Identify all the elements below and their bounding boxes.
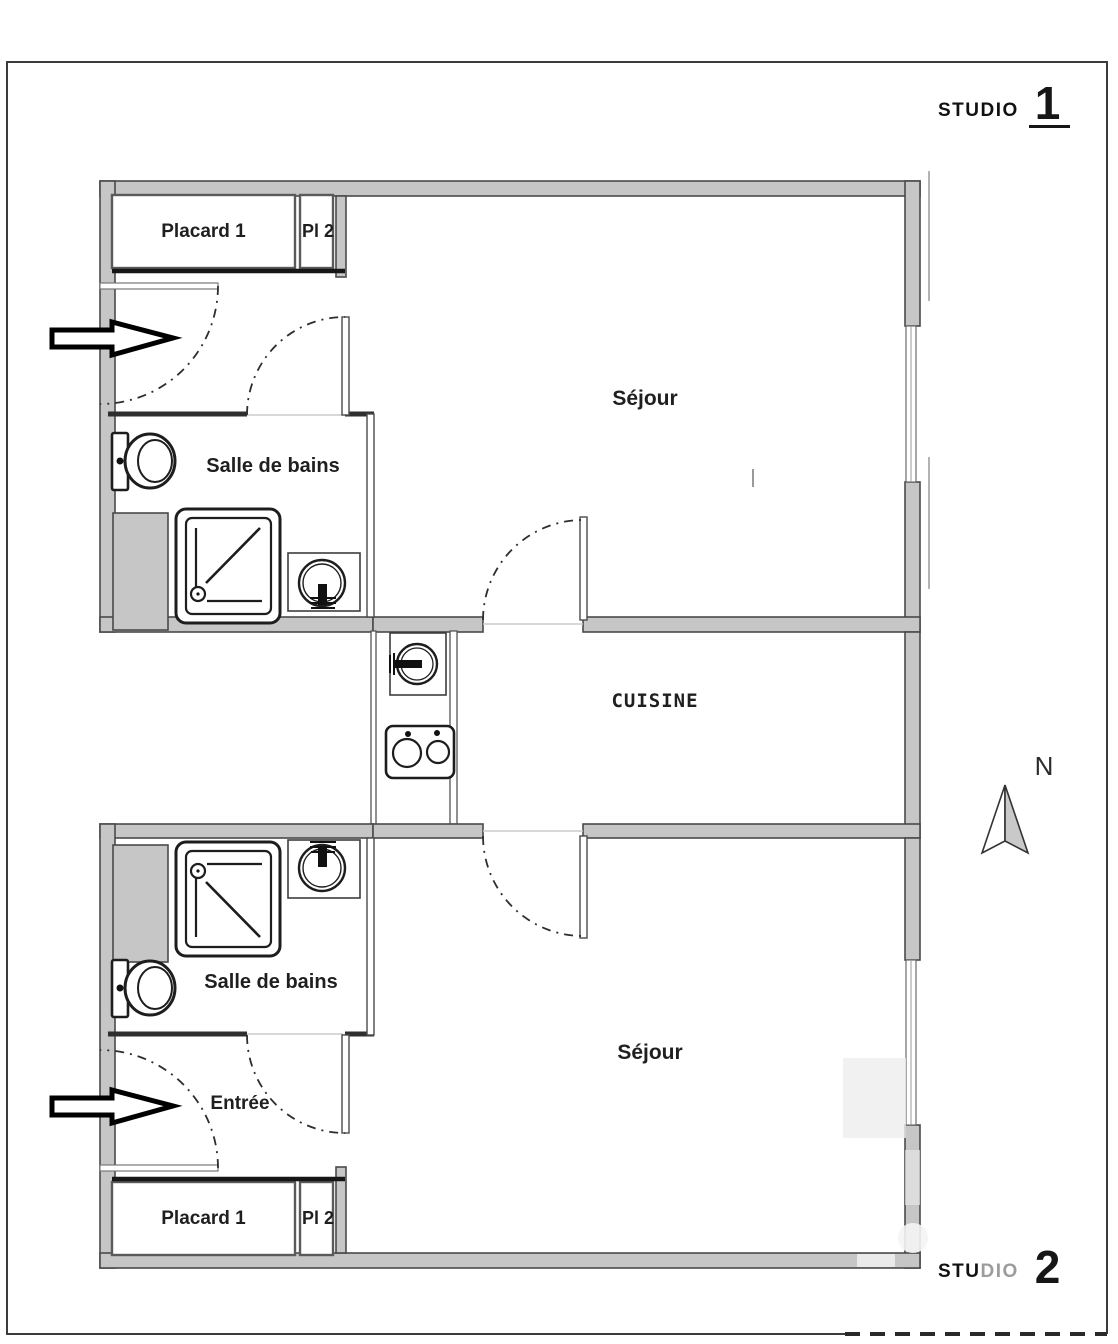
studio1-pl2-label: Pl 2 (296, 195, 340, 268)
studio1-washbasin-icon (288, 553, 360, 611)
studio2-pl2-label: Pl 2 (296, 1182, 340, 1255)
studio1-shower-icon (176, 509, 280, 623)
studio2-title-word: STUDIO (938, 1261, 1019, 1289)
studio1-salle-de-bains-label: Salle de bains (193, 452, 353, 480)
studio2-kitchen-door (483, 831, 587, 938)
studio1-toilet-icon (112, 433, 175, 490)
studio1-title: STUDIO 1 (938, 84, 1070, 128)
studio2-placard1-label: Placard 1 (112, 1182, 295, 1255)
studio2-title-word-light: DIO (981, 1261, 1019, 1282)
studio2-window (906, 960, 916, 1125)
studio2-title-number: 2 (1029, 1248, 1071, 1289)
studio1-entry-arrow-icon (52, 322, 173, 355)
studio1-title-number: 1 (1029, 84, 1071, 128)
north-label: N (1026, 750, 1062, 782)
studio2-title: STUDIO 2 (938, 1248, 1070, 1289)
studio2-shower-icon (176, 842, 280, 956)
cuisine-label: CUISINE (575, 687, 735, 715)
studio2-washbasin-icon (288, 840, 360, 898)
studio1-title-word: STUDIO (938, 100, 1019, 128)
studio1-kitchen-door (483, 517, 587, 624)
kitchen-sink-icon (390, 633, 446, 695)
studio1-sejour-label: Séjour (565, 383, 725, 415)
studio2-sejour-label: Séjour (570, 1037, 730, 1069)
north-arrow-icon (982, 785, 1028, 853)
studio2-entry-arrow-icon (52, 1090, 173, 1123)
studio2-toilet-icon (112, 960, 175, 1017)
studio2-title-word-dark: STU (938, 1261, 981, 1282)
kitchen-stove-icon (386, 726, 454, 778)
studio1-placard1-label: Placard 1 (112, 195, 295, 268)
floor-plan-page: STUDIO 1 STUDIO 2 Placard 1 Pl 2 Séjour … (0, 0, 1118, 1344)
studio2-entree-label: Entrée (170, 1090, 310, 1118)
studio2-salle-de-bains-label: Salle de bains (191, 968, 351, 996)
